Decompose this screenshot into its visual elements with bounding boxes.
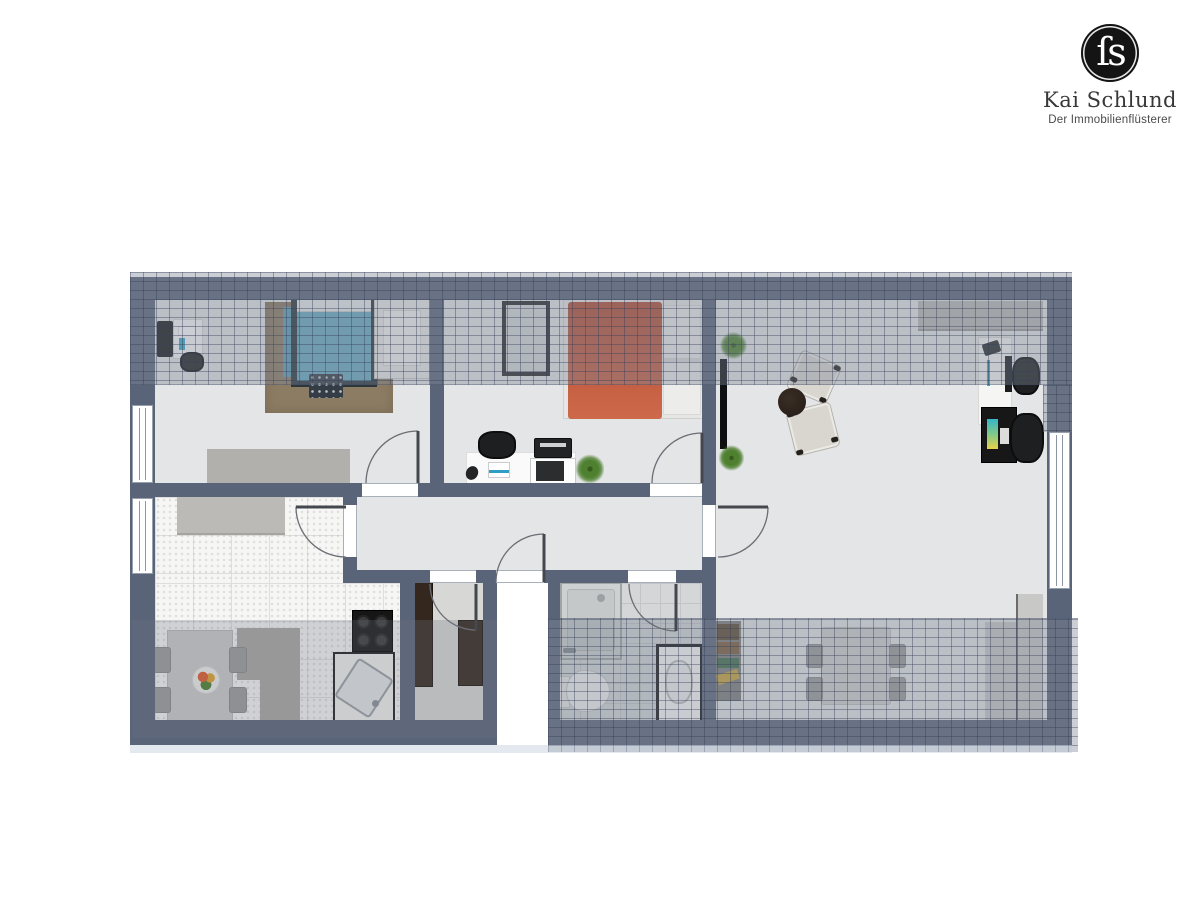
plan-bottom-shadow [130,745,1072,753]
copier-lid [536,461,564,481]
door-threshold-entrance [496,570,544,583]
hallway-floor [357,497,702,570]
brand-name: Kai Schlund [1040,88,1180,112]
desk-item [1000,428,1009,444]
brand-logo: ſs Kai Schlund Der Immobilienflüsterer [1040,24,1180,126]
brand-tagline: Der Immobilienflüsterer [1040,114,1180,126]
wall-mid-horizontal [130,483,716,497]
kitchen-counter [177,497,285,535]
potted-plant [576,454,604,484]
office-chair [1010,413,1044,463]
roof-slope-hatch-top [130,272,1072,385]
door-threshold-bedroom-1 [362,483,418,497]
printer [534,438,572,458]
printer-slot [540,443,566,447]
door-threshold-bedroom-2 [650,483,702,497]
logo-disc: ſs [1081,24,1139,82]
door-threshold-living-room [702,505,716,557]
logo-monogram: ſs [1081,24,1139,82]
keyboard-accent [489,470,509,473]
potted-plant [719,445,744,471]
window-living-room [1049,432,1070,589]
door-threshold-bathroom [628,570,676,583]
office-chair [478,431,516,459]
door-threshold-kitchen [343,505,357,557]
window-bedroom-1 [132,405,153,483]
screen-accent [987,419,998,449]
roof-slope-hatch-bottom [548,618,1078,752]
door-threshold-storage [430,570,476,583]
window-kitchen [132,498,153,574]
roof-slope-hatch-right [1043,385,1072,432]
ceiling-shade-kitchen [132,620,497,738]
coffee-table [778,388,806,416]
shower-drain [597,594,605,602]
floorplan-page: ſs Kai Schlund Der Immobilienflüsterer [0,0,1200,900]
sideboard [207,449,350,483]
